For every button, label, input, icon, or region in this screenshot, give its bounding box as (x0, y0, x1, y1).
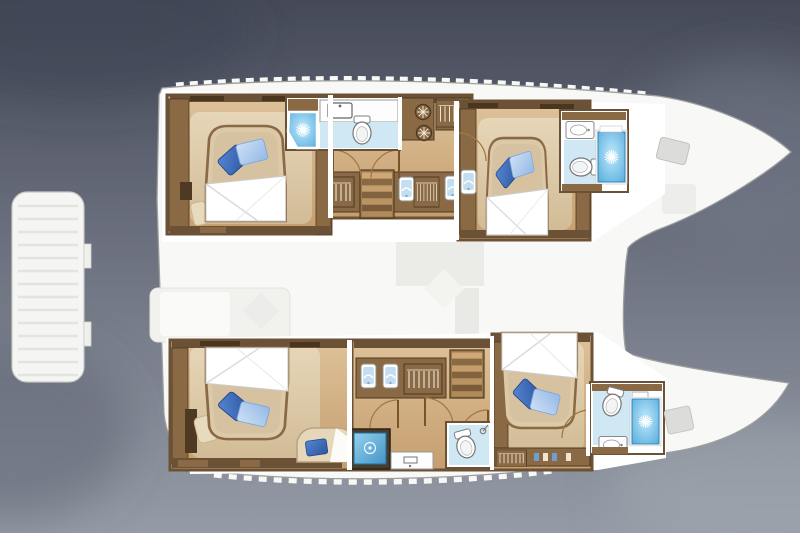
staircase (450, 350, 484, 398)
island-double-bed (502, 333, 577, 428)
port-forward-bathroom (560, 110, 628, 192)
starboard-hull-interior (166, 332, 694, 474)
yacht-floorplan-diagram (0, 0, 800, 533)
seat-pillow (305, 439, 328, 457)
island-double-bed (206, 126, 286, 221)
hanging-locker (496, 450, 526, 467)
staircase (360, 170, 394, 218)
porthole (383, 364, 398, 388)
floorplan-canvas (0, 0, 800, 533)
shower (630, 397, 661, 446)
port-hull-interior (162, 90, 690, 242)
toilet (353, 116, 371, 144)
starboard-forward-bathroom (590, 382, 664, 454)
chaise-seat (297, 428, 352, 462)
shower (596, 130, 627, 184)
porthole (461, 170, 476, 194)
starboard-aft-cabin (170, 340, 352, 470)
vanity-desk (391, 452, 433, 469)
hanging-locker (404, 364, 442, 394)
deck-hatch-fan (417, 126, 432, 141)
swim-platform (12, 192, 91, 382)
deck-hatch-fan (416, 105, 431, 120)
porthole (399, 177, 414, 201)
starboard-forward-cabin (492, 333, 592, 470)
island-double-bed (206, 348, 288, 439)
starboard-mid-bathroom (446, 422, 492, 468)
island-double-bed (487, 138, 548, 235)
bow-deck-hatch (664, 406, 694, 435)
port-aft-bathroom (286, 97, 400, 150)
porthole (361, 364, 376, 388)
toilet (570, 158, 598, 176)
washbasin (566, 122, 594, 139)
hanging-locker (414, 177, 439, 207)
